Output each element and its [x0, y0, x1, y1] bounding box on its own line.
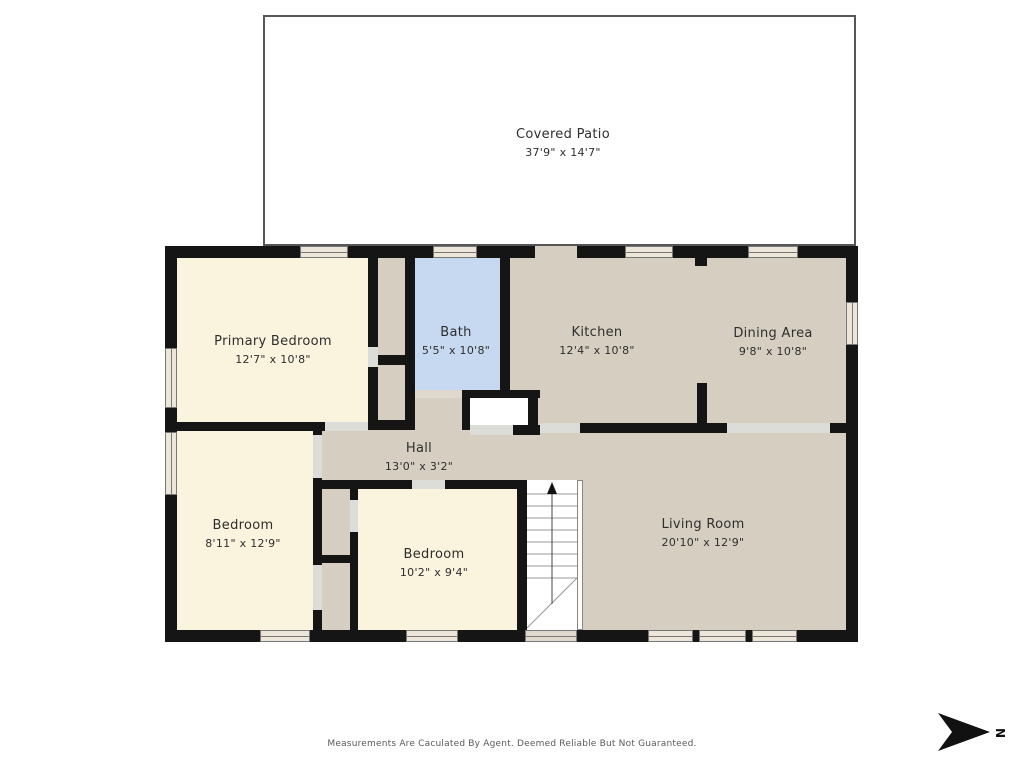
entry-door-marker: [525, 630, 577, 642]
interior-wall: [462, 390, 470, 430]
disclaimer-text: Measurements Are Caculated By Agent. Dee…: [0, 739, 1024, 749]
room-label-primary-bedroom: Primary Bedroom12'7" x 10'8": [214, 334, 332, 366]
interior-wall: [830, 423, 846, 433]
door-opening: [727, 423, 830, 433]
interior-wall: [695, 258, 707, 266]
interior-wall: [500, 258, 510, 398]
interior-wall: [697, 383, 707, 433]
patio-door-opening: [535, 246, 577, 258]
window-marker: [165, 432, 177, 495]
room-label-covered-patio: Covered Patio37'9" x 14'7": [516, 127, 610, 159]
door-opening: [412, 480, 445, 489]
staircase: [527, 480, 577, 630]
interior-wall: [177, 422, 325, 431]
interior-wall: [513, 425, 540, 435]
interior-wall: [368, 420, 415, 430]
window-marker: [752, 630, 797, 642]
room-label-living-room: Living Room20'10" x 12'9": [661, 517, 744, 549]
door-opening: [470, 425, 513, 435]
room-label-bedroom-middle: Bedroom10'2" x 9'4": [400, 547, 468, 579]
door-opening: [540, 423, 580, 433]
door-opening: [415, 390, 462, 398]
room-label-kitchen: Kitchen12'4" x 10'8": [559, 325, 635, 357]
window-marker: [748, 246, 798, 258]
window-marker: [406, 630, 458, 642]
interior-wall: [405, 258, 415, 430]
north-label: N: [993, 728, 1007, 738]
window-marker: [648, 630, 693, 642]
interior-wall: [318, 555, 353, 563]
window-marker: [165, 348, 177, 408]
door-opening: [325, 422, 368, 431]
interior-wall: [313, 480, 412, 489]
interior-wall: [445, 480, 527, 489]
room-label-bath: Bath5'5" x 10'8": [422, 325, 490, 357]
door-opening: [350, 500, 358, 532]
room-label-dining-area: Dining Area9'8" x 10'8": [733, 326, 812, 358]
floor-plan: Covered Patio37'9" x 14'7" Primary Bedro…: [0, 0, 1024, 768]
interior-wall: [368, 258, 378, 430]
north-arrow-icon: N: [930, 705, 1015, 760]
window-marker: [699, 630, 746, 642]
room-label-bedroom-left: Bedroom8'11" x 12'9": [205, 518, 281, 550]
door-opening: [313, 565, 322, 610]
window-marker: [433, 246, 477, 258]
window-marker: [846, 302, 858, 345]
window-marker: [300, 246, 348, 258]
window-marker: [260, 630, 310, 642]
room-label-hall: Hall13'0" x 3'2": [385, 441, 453, 473]
window-marker: [625, 246, 673, 258]
stair-rail-wall: [577, 480, 583, 630]
interior-wall: [517, 480, 527, 630]
room-bath: [415, 258, 500, 390]
door-opening: [368, 347, 378, 367]
door-opening: [313, 435, 322, 478]
